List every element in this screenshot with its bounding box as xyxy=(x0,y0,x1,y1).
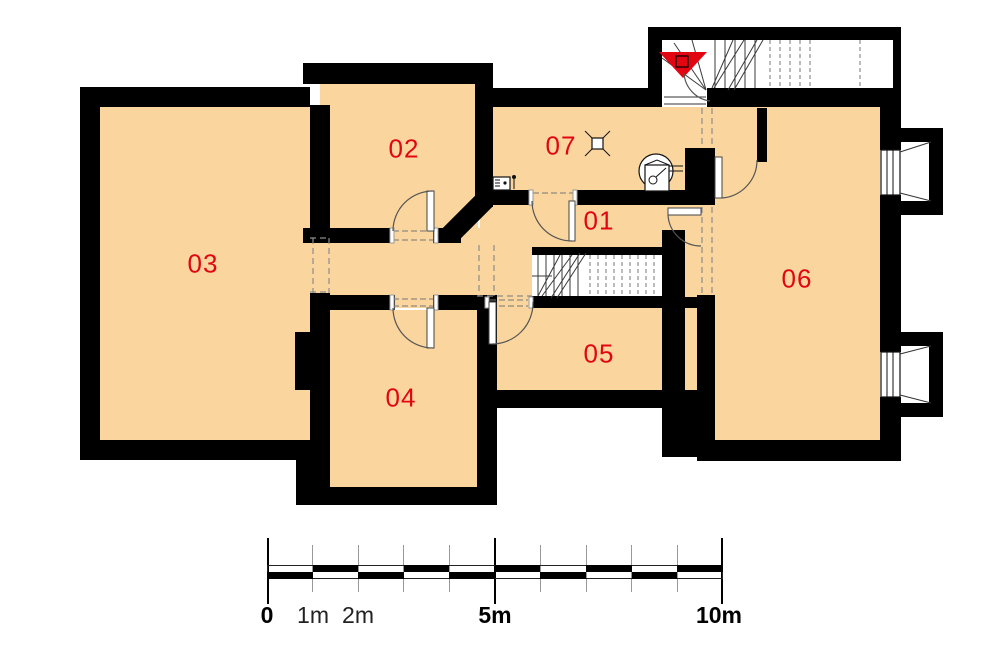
window-icon xyxy=(881,150,900,195)
stairs-lower-treads xyxy=(532,253,654,298)
floor-plan: 01 02 03 04 05 06 07 0 1m 2m 5m xyxy=(0,0,1000,658)
room-label-04: 04 xyxy=(371,383,431,414)
scale-label-10m: 10m xyxy=(696,602,742,629)
scale-label-0: 0 xyxy=(261,602,274,629)
window-icon xyxy=(881,352,900,397)
room-label-03: 03 xyxy=(173,249,233,280)
scale-label-2m: 2m xyxy=(342,602,374,629)
wall-chamfer xyxy=(449,199,486,236)
scale-label-5m: 5m xyxy=(478,602,511,629)
room-label-02: 02 xyxy=(374,134,434,165)
door-room-04 xyxy=(393,308,434,348)
door-room-05 xyxy=(489,302,533,344)
window-well-splays xyxy=(900,142,931,403)
door-room-06 xyxy=(715,157,757,198)
door-room-02 xyxy=(393,191,434,231)
room-label-01: 01 xyxy=(569,206,629,237)
door-corridor-06 xyxy=(668,208,701,246)
opening-dashes xyxy=(310,108,712,296)
boiler-icon xyxy=(639,154,683,191)
room-label-07: 07 xyxy=(531,131,591,162)
gas-meter-icon xyxy=(493,175,516,190)
room-label-05: 05 xyxy=(569,339,629,370)
scale-bar: 0 1m 2m 5m 10m xyxy=(267,538,723,638)
room-label-06: 06 xyxy=(767,264,827,295)
scale-label-1m: 1m xyxy=(297,602,329,629)
